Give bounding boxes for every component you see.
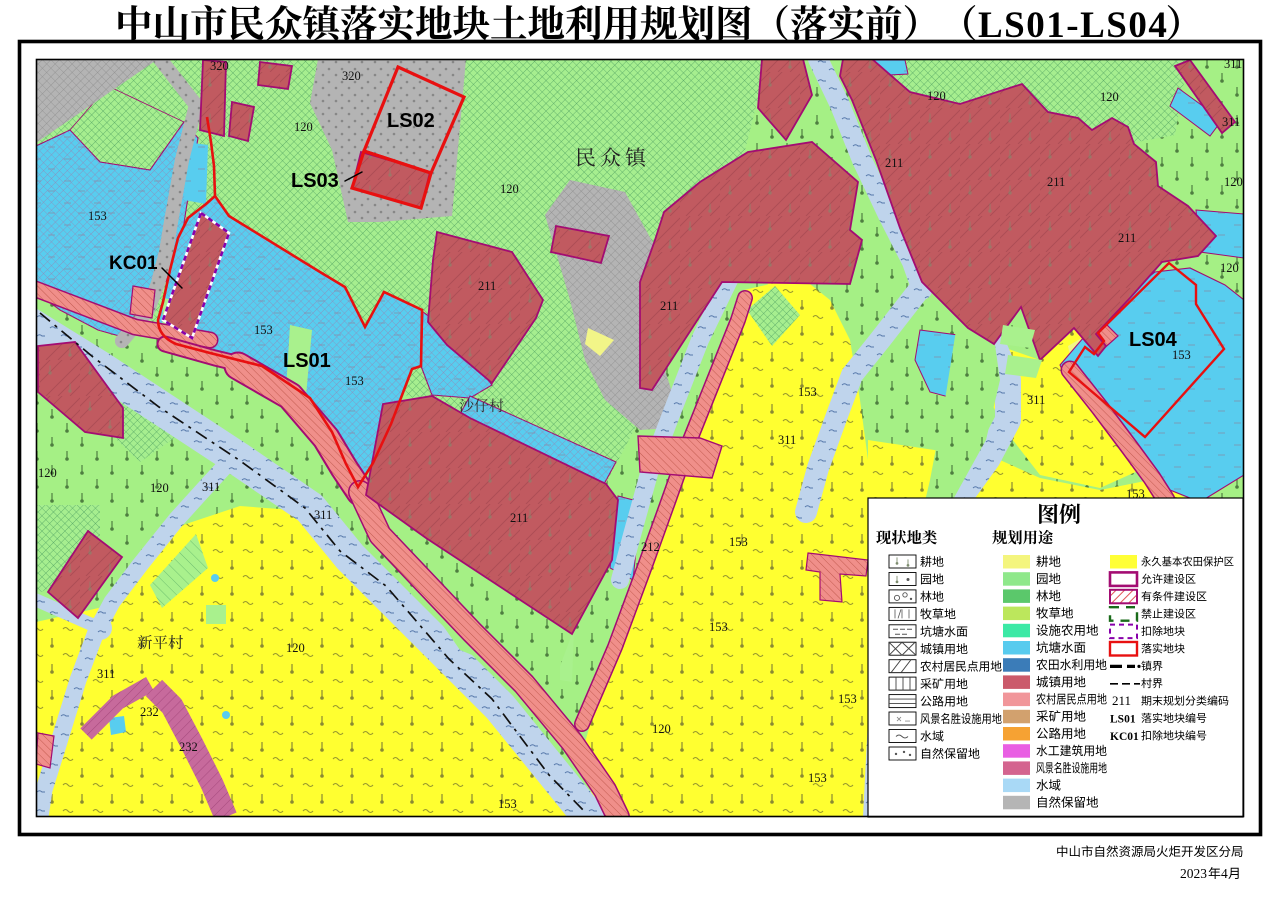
svg-text:311: 311 bbox=[314, 508, 332, 522]
svg-text:153: 153 bbox=[729, 535, 748, 549]
svg-text:120: 120 bbox=[1220, 261, 1239, 275]
svg-text:KC01: KC01 bbox=[109, 253, 158, 274]
svg-text:120: 120 bbox=[38, 466, 57, 480]
svg-text:153: 153 bbox=[798, 385, 817, 399]
svg-text:311: 311 bbox=[97, 667, 115, 681]
svg-text:211: 211 bbox=[1112, 693, 1131, 708]
svg-text:311: 311 bbox=[1027, 393, 1045, 407]
svg-text:LS04: LS04 bbox=[1129, 329, 1178, 351]
svg-text:KC01: KC01 bbox=[1110, 731, 1139, 743]
svg-text:311: 311 bbox=[778, 433, 796, 447]
svg-text:LS01: LS01 bbox=[283, 350, 331, 372]
svg-text:2023: 2023 bbox=[1180, 866, 1207, 881]
svg-text:232: 232 bbox=[140, 705, 159, 719]
svg-text:LS01-LS04: LS01-LS04 bbox=[978, 5, 1168, 46]
svg-text:211: 211 bbox=[885, 156, 903, 170]
svg-text:153: 153 bbox=[254, 323, 273, 337]
svg-text:LS01: LS01 bbox=[1110, 714, 1136, 726]
svg-text:311: 311 bbox=[202, 480, 220, 494]
svg-text:212: 212 bbox=[641, 540, 660, 554]
svg-text:120: 120 bbox=[150, 481, 169, 495]
svg-text:211: 211 bbox=[478, 279, 496, 293]
svg-text:153: 153 bbox=[88, 209, 107, 223]
svg-text:LS03: LS03 bbox=[291, 170, 339, 192]
svg-text:153: 153 bbox=[808, 771, 827, 785]
svg-text:4: 4 bbox=[1221, 866, 1228, 881]
svg-text:120: 120 bbox=[500, 182, 519, 196]
svg-text:311: 311 bbox=[1222, 115, 1240, 129]
svg-text:153: 153 bbox=[345, 374, 364, 388]
svg-text:120: 120 bbox=[294, 120, 313, 134]
svg-text:120: 120 bbox=[1224, 175, 1243, 189]
svg-text:211: 211 bbox=[510, 511, 528, 525]
svg-text:211: 211 bbox=[1118, 231, 1136, 245]
svg-text:232: 232 bbox=[179, 740, 198, 754]
svg-text:120: 120 bbox=[1100, 90, 1119, 104]
svg-text:211: 211 bbox=[660, 299, 678, 313]
svg-text:153: 153 bbox=[838, 692, 857, 706]
svg-text:153: 153 bbox=[709, 620, 728, 634]
svg-text:120: 120 bbox=[652, 722, 671, 736]
svg-text:211: 211 bbox=[1047, 175, 1065, 189]
svg-text:LS02: LS02 bbox=[387, 110, 435, 132]
svg-text:320: 320 bbox=[342, 69, 361, 83]
svg-text:320: 320 bbox=[210, 59, 229, 73]
svg-text:120: 120 bbox=[286, 641, 305, 655]
svg-text:153: 153 bbox=[498, 797, 517, 811]
svg-text:120: 120 bbox=[927, 89, 946, 103]
